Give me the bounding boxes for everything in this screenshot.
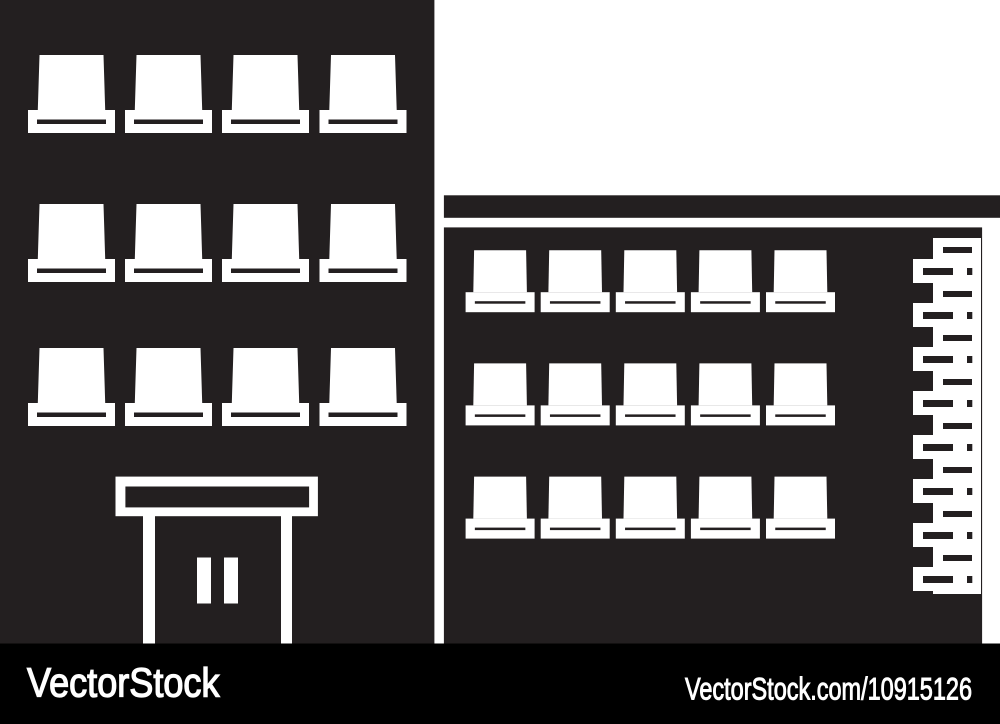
- svg-text:VectorStock: VectorStock: [27, 660, 220, 706]
- svg-text:VectorStock.com/10915126: VectorStock.com/10915126: [685, 671, 972, 707]
